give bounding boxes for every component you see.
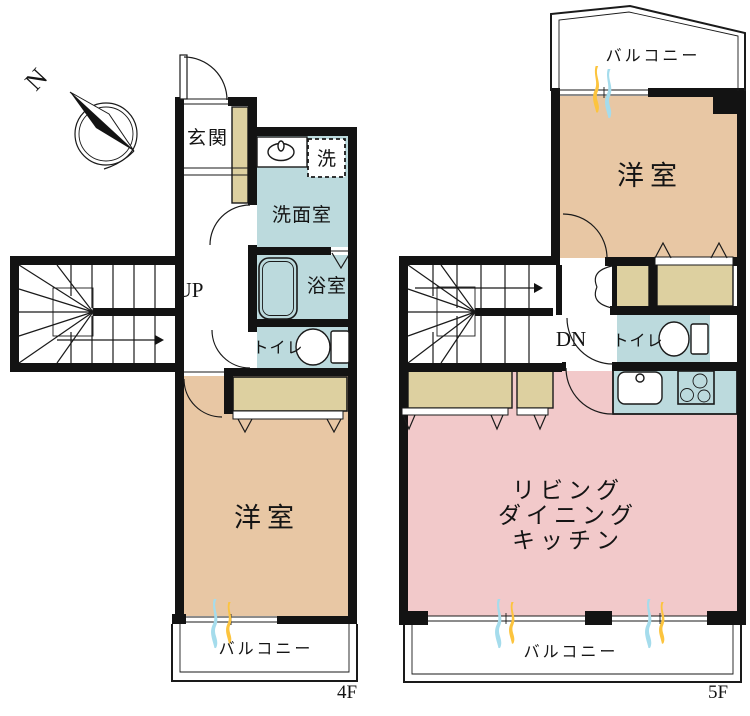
closet-5f-hall xyxy=(615,265,649,308)
closet-5f-right xyxy=(657,263,733,306)
closet-strip-5f-right xyxy=(655,257,733,265)
label-western-room-4f: 洋室 xyxy=(234,503,300,533)
label-ldk-line1: リビング xyxy=(512,478,624,503)
label-entrance: 玄関 xyxy=(187,127,229,149)
label-bathroom: 浴室 xyxy=(307,275,347,297)
shoe-cabinet-4f xyxy=(232,107,248,203)
kitchen-sink-icon xyxy=(618,372,662,404)
label-western-room-5f: 洋室 xyxy=(617,161,683,191)
closet-strip-4f xyxy=(233,411,343,419)
toilet-icon-5f xyxy=(659,322,708,356)
floor-label-5f: 5F xyxy=(708,682,728,703)
closet-4f xyxy=(233,377,347,411)
label-balcony-5f-top: バルコニー xyxy=(606,48,701,65)
winder-fan-4f xyxy=(19,265,93,363)
label-stairs-dn: DN xyxy=(556,327,586,351)
label-balcony-5f-bottom: バルコニー xyxy=(524,644,619,661)
label-ldk-line2: ダイニング xyxy=(498,503,638,528)
label-laundry: 洗 xyxy=(317,148,337,170)
floor-plan-canvas: N 玄関 洗 洗面室 浴室 トイレ UP 洋室 バルコニー 4F バルコニー 洋… xyxy=(0,0,750,716)
compass-north-label: N xyxy=(19,62,53,96)
washroom-door-4f xyxy=(210,205,250,245)
label-balcony-4f: バルコニー xyxy=(219,641,314,658)
label-washroom: 洗面室 xyxy=(272,204,332,226)
closet-5f-left xyxy=(408,370,512,408)
stair-arrow-4f xyxy=(57,335,164,345)
washbasin-icon xyxy=(257,137,307,167)
closet-bifold-door-5f xyxy=(595,266,612,308)
toilet-door-4f xyxy=(212,330,250,368)
closet-strip-5f-mid xyxy=(517,408,548,415)
label-toilet-5f: トイレ xyxy=(612,333,663,350)
label-ldk-line3: キッチン xyxy=(512,528,624,553)
floor-plan-svg: N 玄関 洗 洗面室 浴室 トイレ UP 洋室 バルコニー 4F バルコニー 洋… xyxy=(0,0,750,716)
label-toilet-4f: トイレ xyxy=(252,340,303,357)
toilet-icon-4f xyxy=(296,329,349,365)
entrance-door-4f xyxy=(180,55,227,100)
winder-fan-5f xyxy=(408,265,475,363)
closet-strip-5f-left xyxy=(402,408,508,415)
label-stairs-up: UP xyxy=(177,278,204,302)
closet-5f-mid xyxy=(517,368,553,408)
compass-icon: N xyxy=(19,62,137,169)
stair-arrow-5f xyxy=(415,283,543,293)
entrance-threshold xyxy=(184,99,228,104)
floor-label-4f: 4F xyxy=(337,682,357,703)
